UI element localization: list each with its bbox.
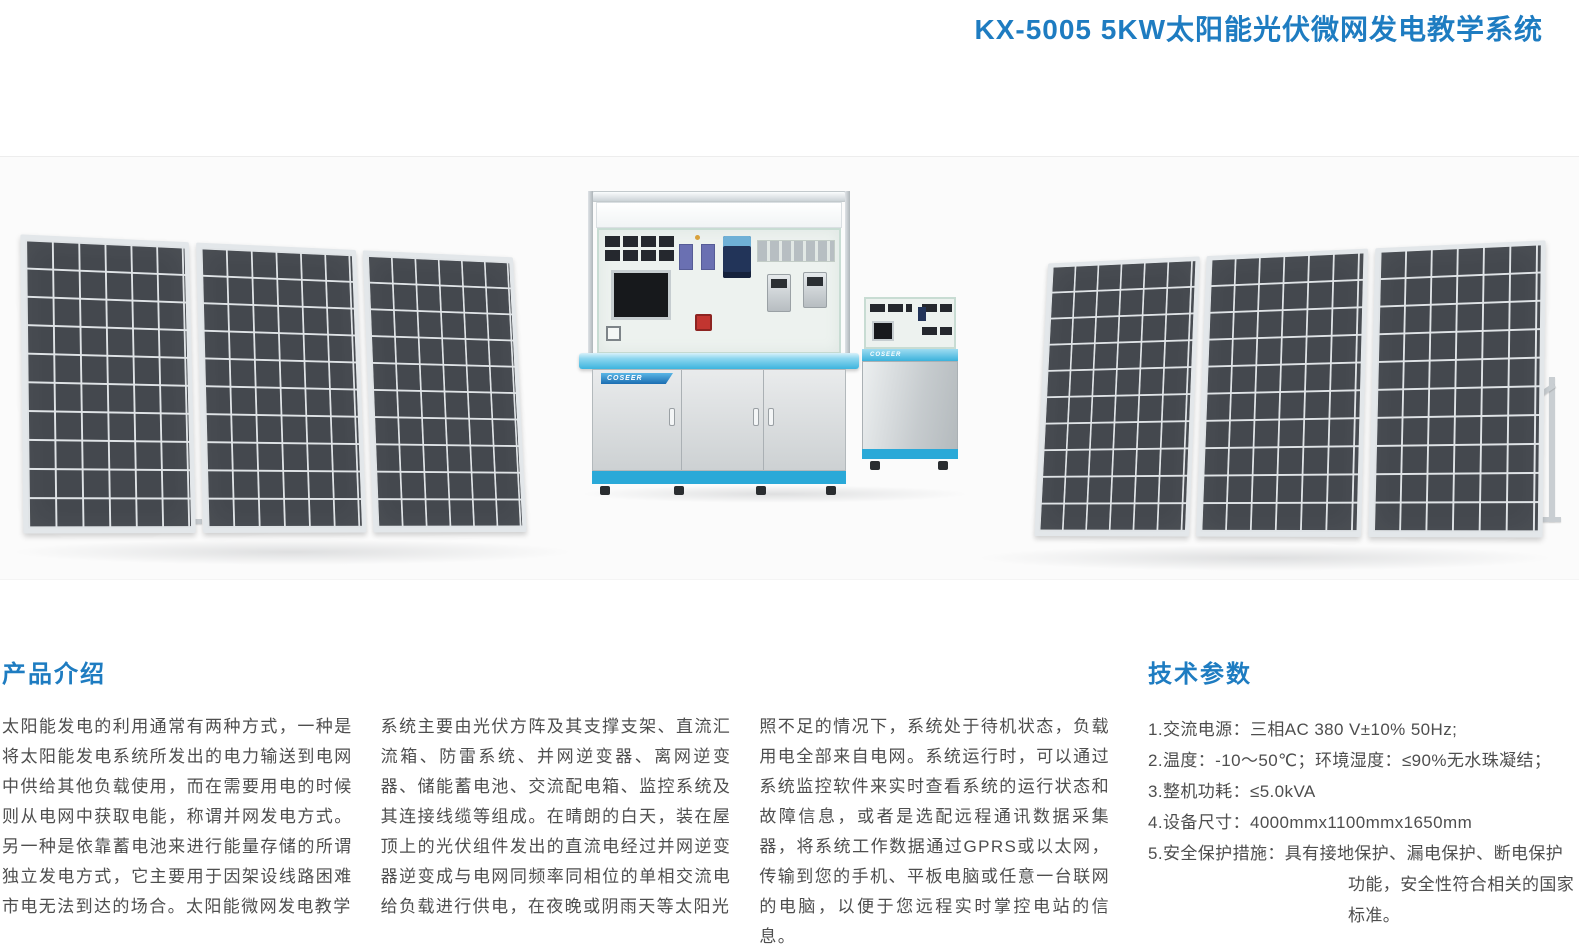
intro-column-3: 照不足的情况下，系统处于待机状态，负载用电全部来自电网。系统运行时，可以通过系统… (759, 712, 1110, 952)
pilot-lamp (695, 235, 700, 240)
console-frame-post (588, 191, 593, 363)
console-control-panel (597, 228, 841, 354)
solar-panel (1196, 249, 1367, 537)
intro-column-1: 太阳能发电的利用通常有两种方式，一种是将太阳能发电系统所发出的电力输送到电网中供… (2, 712, 353, 952)
intro-column-2: 系统主要由光伏方阵及其支撑支架、直流汇流箱、防雷系统、并网逆变器、离网逆变器、储… (381, 712, 732, 952)
cabinet-door (682, 370, 764, 470)
support-bar (1549, 377, 1555, 521)
door-handle (768, 408, 774, 426)
console-desk (579, 353, 859, 369)
caster-wheel (674, 486, 684, 495)
battery-module (918, 307, 926, 321)
intro-columns: 太阳能发电的利用通常有两种方式，一种是将太阳能发电系统所发出的电力输送到电网中供… (2, 712, 1110, 952)
spec-item: 2.温度：-10～50℃；环境湿度：≤90%无水珠凝结； (1148, 745, 1578, 776)
solar-panel (20, 234, 196, 533)
specs-list: 1.交流电源：三相AC 380 V±10% 50Hz; 2.温度：-10～50℃… (1148, 714, 1578, 931)
battery-display (872, 321, 894, 341)
solar-panel (196, 243, 366, 533)
left-solar-array (20, 234, 526, 533)
battery-control-panel (864, 297, 956, 349)
solar-panel (362, 250, 526, 532)
door-handle (753, 408, 759, 426)
meter-bank (870, 304, 912, 312)
specs-heading: 技术参数 (1148, 654, 1252, 689)
touchscreen-display (611, 270, 671, 320)
product-photo: COSEER COSEER (0, 156, 1579, 580)
meter-bank (605, 236, 674, 247)
caster-wheel (938, 461, 948, 470)
ground-shadow (975, 545, 1555, 571)
door-handle (669, 408, 675, 426)
right-solar-array (1034, 240, 1545, 537)
console-light-bar (592, 191, 846, 202)
spec-item: 1.交流电源：三相AC 380 V±10% 50Hz; (1148, 714, 1578, 745)
console-lamp-housing (596, 202, 842, 228)
meter-bank (922, 304, 952, 312)
cabinet-door: COSEER (593, 370, 682, 470)
spec-item: 4.设备尺寸：4000mmx1100mmx1650mm (1148, 807, 1578, 838)
solar-panel (1368, 240, 1546, 537)
charge-controller (723, 236, 751, 278)
cabinet-door (764, 370, 845, 470)
energy-meter (767, 274, 791, 312)
brand-label: COSEER (601, 373, 673, 384)
battery-brand-band: COSEER (862, 349, 958, 361)
console-frame-post (845, 191, 850, 363)
inverter-module (679, 244, 693, 270)
inverter-module (701, 244, 715, 270)
spec-item: 3.整机功耗：≤5.0kVA (1148, 776, 1578, 807)
ground-shadow (10, 539, 575, 565)
panel-socket (606, 326, 621, 341)
page-title: KX-5005 5KW太阳能光伏微网发电教学系统 (974, 8, 1543, 48)
emergency-stop-button (695, 314, 712, 331)
battery-cabinet-body (862, 361, 958, 451)
battery-base (862, 449, 958, 459)
caster-wheel (870, 461, 880, 470)
console-cabinet: COSEER (592, 369, 846, 471)
main-console: COSEER (588, 191, 850, 495)
intro-heading: 产品介绍 (2, 654, 106, 689)
caster-wheel (756, 486, 766, 495)
meter-bank (922, 327, 952, 335)
spec-item: 5.安全保护措施：具有接地保护、漏电保护、断电保护功能，安全性符合相关的国家标准… (1148, 838, 1578, 931)
energy-meter (803, 272, 827, 308)
battery-cabinet: COSEER (862, 297, 958, 473)
meter-bank (605, 250, 674, 261)
console-base (592, 471, 846, 484)
solar-panel (1034, 256, 1200, 536)
breaker-row (757, 240, 835, 262)
caster-wheel (826, 486, 836, 495)
caster-wheel (600, 486, 610, 495)
